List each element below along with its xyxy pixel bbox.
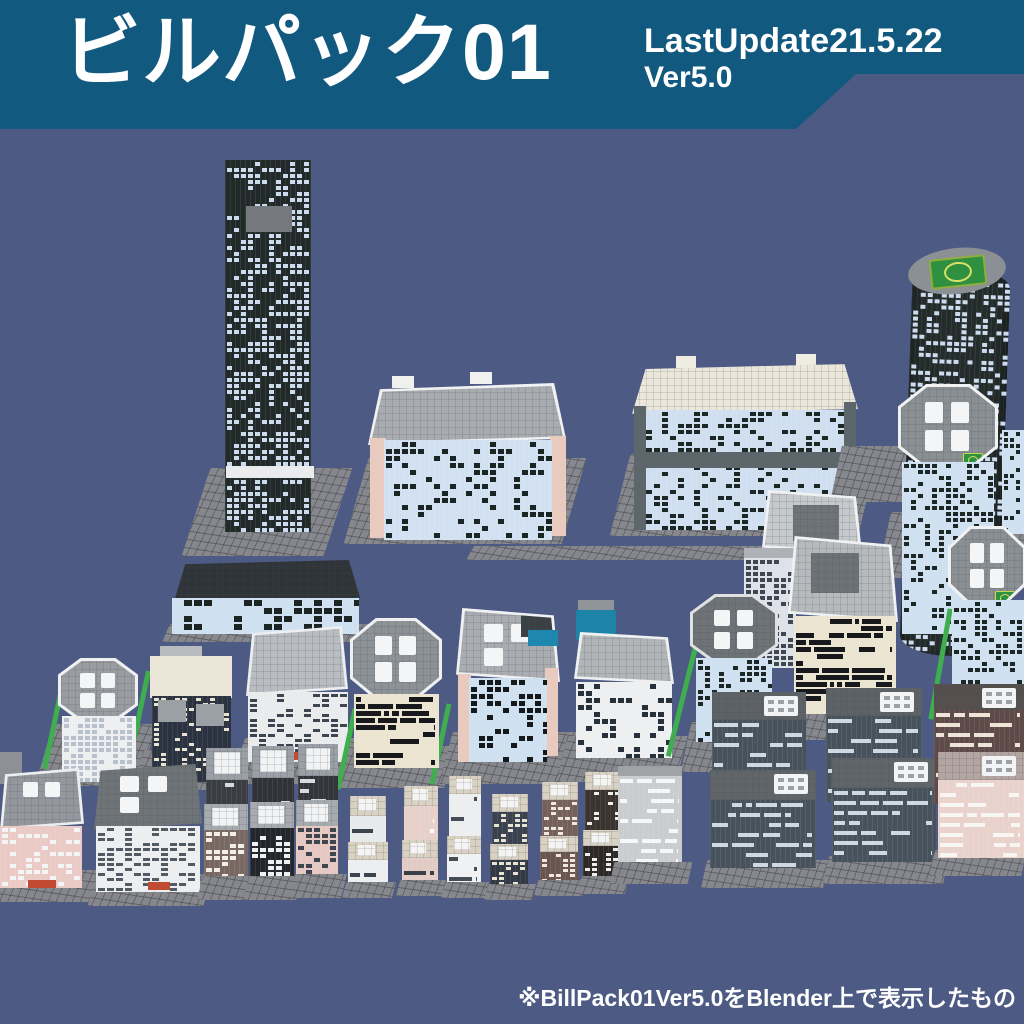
window-cell	[262, 528, 267, 532]
window-cell	[530, 442, 536, 447]
roof-panel	[548, 839, 566, 849]
window-cell	[932, 359, 937, 363]
window-cell	[939, 542, 944, 546]
window-cell	[933, 341, 938, 345]
window-cell	[290, 264, 295, 268]
window-cell	[501, 819, 506, 822]
window-cell	[276, 168, 281, 172]
window-cell	[1016, 468, 1020, 472]
roof-unit	[101, 693, 115, 708]
window-cell	[276, 312, 281, 316]
window-cell	[968, 644, 973, 648]
window-cell	[204, 600, 212, 606]
window-cell	[946, 530, 951, 534]
window-cell	[955, 318, 960, 322]
window-cell	[538, 526, 544, 531]
window-cell	[154, 728, 159, 731]
window-cell	[976, 325, 981, 329]
window-cell	[618, 698, 624, 703]
window-cell	[113, 742, 118, 746]
stripe	[400, 718, 416, 723]
window-cell	[98, 873, 105, 876]
window-cell	[814, 442, 820, 446]
window-cell	[535, 701, 541, 706]
window-cell	[26, 870, 32, 874]
window-cell	[196, 768, 201, 771]
window-cell	[248, 510, 253, 514]
window-streak	[883, 801, 903, 805]
window-cell	[269, 168, 274, 172]
window-cell	[705, 672, 710, 676]
footnote: ※BillPack01Ver5.0をBlender上で表示したもの	[518, 979, 1016, 1013]
window-cell	[705, 678, 710, 682]
window-cell	[592, 863, 597, 866]
window-cell	[781, 584, 786, 588]
window-cell	[125, 843, 132, 846]
window-cell	[304, 306, 309, 310]
window-cell	[304, 360, 309, 364]
window-streak	[1018, 833, 1020, 837]
window-cell	[499, 872, 504, 875]
window-cell	[230, 832, 236, 836]
window-cell	[961, 638, 966, 642]
window-cell	[269, 198, 274, 202]
window-cell	[686, 442, 692, 446]
window-cell	[98, 838, 105, 841]
window-cell	[1005, 290, 1010, 294]
window-cell	[702, 424, 708, 428]
window-cell	[99, 718, 104, 722]
window-cell	[127, 724, 132, 728]
window-streak	[931, 851, 932, 855]
window-streak	[1017, 713, 1020, 717]
window-streak	[769, 823, 781, 827]
window-cell	[394, 456, 400, 461]
window-cell	[746, 566, 751, 570]
window-cell	[241, 330, 246, 334]
window-cell	[402, 463, 408, 468]
window-cell	[276, 836, 282, 840]
window-cell	[933, 329, 938, 333]
window-cell	[904, 554, 909, 558]
window-cell	[947, 336, 952, 340]
window-cell	[981, 361, 986, 365]
window-cell	[269, 384, 274, 388]
window-cell	[719, 672, 724, 676]
window-cell	[626, 698, 632, 703]
window-cell	[767, 560, 772, 564]
window-cell	[92, 718, 97, 722]
stripe	[822, 668, 849, 673]
window-streak	[940, 823, 960, 827]
building-roof	[632, 364, 858, 414]
building-facade	[542, 800, 578, 836]
window-cell	[277, 729, 284, 732]
window-streak	[875, 739, 896, 743]
window-cell	[113, 730, 118, 734]
window-cell	[988, 488, 993, 492]
building-facade	[404, 806, 438, 840]
window-streak	[732, 803, 741, 807]
window-cell	[269, 420, 274, 424]
window-cell	[241, 282, 246, 286]
window-cell	[304, 378, 309, 382]
window-streak	[936, 713, 950, 717]
window-cell	[923, 635, 928, 639]
window-cell	[402, 505, 408, 510]
window-cell	[283, 510, 288, 514]
window-cell	[262, 420, 267, 424]
window-cell	[925, 506, 930, 510]
window-cell	[758, 412, 764, 416]
window-cell	[64, 724, 69, 728]
window-cell	[946, 506, 951, 510]
window-cell	[250, 699, 257, 702]
window-cell	[78, 742, 83, 746]
window-cell	[747, 660, 752, 664]
window-cell	[471, 694, 477, 699]
window-cell	[920, 305, 925, 309]
stripe	[390, 739, 419, 744]
window-streak	[796, 853, 812, 857]
window-cell	[646, 514, 652, 518]
window-cell	[297, 522, 302, 526]
window-cell	[297, 270, 302, 274]
window-cell	[594, 719, 600, 724]
window-cell	[761, 672, 766, 676]
window-cell	[466, 477, 472, 482]
window-cell	[742, 514, 748, 518]
window-cell	[297, 366, 302, 370]
window-cell	[276, 186, 281, 190]
window-streak	[747, 763, 772, 767]
window-cell	[386, 456, 392, 461]
window-cell	[997, 301, 1002, 305]
window-cell	[194, 624, 202, 630]
window-cell	[234, 516, 239, 520]
window-cell	[490, 470, 496, 475]
window-cell	[322, 699, 329, 702]
window-cell	[1003, 356, 1008, 360]
window-cell	[154, 733, 159, 736]
window-cell	[334, 616, 342, 622]
window-cell	[262, 450, 267, 454]
window-cell	[939, 371, 944, 375]
window-streak	[750, 753, 765, 757]
window-cell	[58, 852, 64, 856]
window-cell	[1016, 444, 1020, 448]
window-cell	[702, 484, 708, 488]
window-cell	[255, 504, 260, 508]
window-streak	[772, 863, 797, 867]
window-cell	[210, 698, 215, 701]
window-cell	[188, 863, 195, 866]
window-cell	[127, 730, 132, 734]
window-cell	[761, 678, 766, 682]
window-cell	[227, 408, 232, 412]
window-cell	[268, 724, 275, 727]
window-cell	[255, 270, 260, 274]
building-part	[196, 704, 224, 726]
sign-dot	[1006, 768, 1012, 772]
window-cell	[269, 240, 274, 244]
window-streak	[1003, 853, 1017, 857]
window-cell	[482, 470, 488, 475]
window-cell	[106, 730, 111, 734]
roof-unit	[951, 430, 969, 451]
sign-dot	[788, 778, 794, 782]
window-cell	[761, 666, 766, 670]
window-cell	[982, 662, 987, 666]
window-cell	[304, 288, 309, 292]
window-cell	[946, 596, 951, 600]
sign-dot	[898, 766, 904, 770]
last-update-label: LastUpdate21.5.22	[644, 22, 943, 61]
window-cell	[283, 192, 288, 196]
window-cell	[932, 494, 937, 498]
window-cell	[702, 508, 708, 512]
sign-dot	[798, 786, 804, 790]
window-cell	[967, 470, 972, 474]
window-cell	[726, 526, 732, 530]
window-cell	[781, 662, 786, 666]
window-cell	[234, 510, 239, 514]
window-cell	[742, 508, 748, 512]
window-cell	[1004, 486, 1008, 490]
window-cell	[234, 492, 239, 496]
window-cell	[260, 836, 266, 840]
window-cell	[298, 846, 304, 850]
roof-panel	[793, 505, 839, 541]
window-cell	[297, 306, 302, 310]
window-cell	[975, 656, 980, 660]
window-cell	[410, 484, 416, 489]
window-cell	[925, 464, 930, 468]
window-cell	[290, 378, 295, 382]
stripe	[814, 647, 846, 652]
window-streak	[620, 839, 638, 843]
window-cell	[227, 216, 232, 220]
window-cell	[125, 828, 132, 831]
building-roof	[710, 770, 816, 800]
window-cell	[234, 252, 239, 256]
window-cell	[996, 650, 1001, 654]
window-cell	[662, 430, 668, 434]
window-cell	[698, 702, 703, 706]
window-cell	[152, 878, 159, 881]
stripe	[887, 675, 892, 680]
window-cell	[733, 666, 738, 670]
stripe	[431, 760, 435, 765]
window-cell	[304, 168, 309, 172]
window-cell	[702, 520, 708, 524]
window-cell	[269, 288, 274, 292]
sign-dot	[996, 700, 1002, 704]
window-streak	[433, 819, 434, 823]
window-cell	[260, 848, 266, 852]
window-cell	[227, 324, 232, 328]
window-cell	[934, 311, 939, 315]
window-cell	[556, 854, 561, 857]
window-cell	[330, 828, 336, 832]
window-cell	[269, 402, 274, 406]
sign-dot	[894, 704, 900, 708]
sign-dot	[918, 766, 924, 770]
window-streak	[926, 821, 932, 825]
window-cell	[297, 192, 302, 196]
building-facade	[469, 678, 547, 762]
window-cell	[544, 832, 549, 835]
window-cell	[658, 712, 664, 717]
window-cell	[143, 848, 150, 851]
window-cell	[474, 484, 480, 489]
window-streak	[940, 843, 963, 847]
window-cell	[754, 666, 759, 670]
window-cell	[314, 834, 320, 838]
window-cell	[276, 324, 281, 328]
window-cell	[269, 342, 274, 346]
window-cell	[297, 336, 302, 340]
window-cell	[18, 876, 24, 880]
window-cell	[234, 616, 242, 622]
window-cell	[918, 482, 923, 486]
window-cell	[774, 584, 779, 588]
window-cell	[988, 361, 993, 365]
window-streak	[834, 831, 857, 835]
window-cell	[984, 295, 989, 299]
window-cell	[997, 319, 1002, 323]
window-cell	[283, 516, 288, 520]
building-part	[158, 700, 186, 722]
window-cell	[934, 323, 939, 327]
window-cell	[85, 748, 90, 752]
window-cell	[143, 873, 150, 876]
window-cell	[734, 442, 740, 446]
window-cell	[276, 270, 281, 274]
window-streak	[787, 743, 802, 747]
window-streak	[1010, 843, 1020, 847]
window-cell	[1016, 510, 1020, 514]
stripe	[378, 718, 397, 723]
window-cell	[519, 708, 525, 713]
window-cell	[227, 288, 232, 292]
window-cell	[276, 438, 281, 442]
window-cell	[322, 734, 329, 737]
building-roof	[252, 746, 294, 778]
window-cell	[224, 728, 229, 731]
window-cell	[790, 430, 796, 434]
window-cell	[234, 168, 239, 172]
window-streak	[728, 813, 736, 817]
window-cell	[234, 300, 239, 304]
window-cell	[734, 430, 740, 434]
window-cell	[10, 876, 16, 880]
window-cell	[806, 436, 812, 440]
window-cell	[50, 840, 56, 844]
window-cell	[927, 317, 932, 321]
window-cell	[955, 306, 960, 310]
window-cell	[902, 640, 907, 644]
window-cell	[694, 418, 700, 422]
window-cell	[92, 778, 97, 782]
window-cell	[734, 424, 740, 428]
window-cell	[304, 180, 309, 184]
window-cell	[982, 620, 987, 624]
window-cell	[975, 650, 980, 654]
window-cell	[269, 258, 274, 262]
window-cell	[487, 715, 493, 720]
window-cell	[1010, 474, 1014, 478]
window-cell	[758, 490, 764, 494]
sign-dot	[894, 696, 900, 700]
roof-panel	[591, 833, 609, 843]
window-cell	[262, 324, 267, 328]
window-cell	[196, 698, 201, 701]
window-cell	[989, 668, 994, 672]
window-cell	[996, 331, 1001, 335]
ground-base	[610, 862, 693, 884]
window-cell	[946, 360, 951, 364]
page-title: ビルパック01	[62, 0, 552, 104]
window-cell	[78, 730, 83, 734]
window-cell	[774, 596, 779, 600]
window-cell	[418, 449, 424, 454]
window-cell	[718, 442, 724, 446]
window-cell	[918, 470, 923, 474]
window-cell	[262, 330, 267, 334]
stripe	[886, 626, 892, 631]
window-cell	[694, 502, 700, 506]
window-cell	[710, 526, 716, 530]
window-cell	[262, 270, 267, 274]
stripe	[876, 682, 892, 687]
window-cell	[248, 432, 253, 436]
window-cell	[996, 602, 1001, 606]
window-cell	[790, 442, 796, 446]
window-cell	[670, 436, 676, 440]
window-streak	[906, 729, 918, 733]
building-roof	[402, 840, 438, 858]
window-streak	[641, 849, 656, 853]
window-cell	[248, 186, 253, 190]
window-cell	[953, 360, 958, 364]
window-cell	[988, 367, 993, 371]
window-cell	[255, 342, 260, 346]
window-cell	[276, 842, 282, 846]
window-streak	[677, 819, 678, 823]
building-roof	[206, 748, 248, 780]
stripe	[368, 704, 393, 709]
window-cell	[248, 318, 253, 322]
window-cell	[996, 626, 1001, 630]
window-cell	[926, 341, 931, 345]
window-cell	[563, 869, 568, 872]
window-cell	[758, 526, 764, 530]
window-cell	[290, 432, 295, 436]
window-cell	[224, 713, 229, 716]
stripe	[852, 668, 885, 673]
window-cell	[1004, 302, 1009, 306]
building-part	[636, 452, 854, 468]
stripe	[845, 682, 860, 687]
window-cell	[290, 198, 295, 202]
window-cell	[161, 868, 168, 871]
window-cell	[262, 318, 267, 322]
window-cell	[255, 318, 260, 322]
window-cell	[330, 834, 336, 838]
window-streak	[994, 843, 1006, 847]
window-cell	[928, 293, 933, 297]
